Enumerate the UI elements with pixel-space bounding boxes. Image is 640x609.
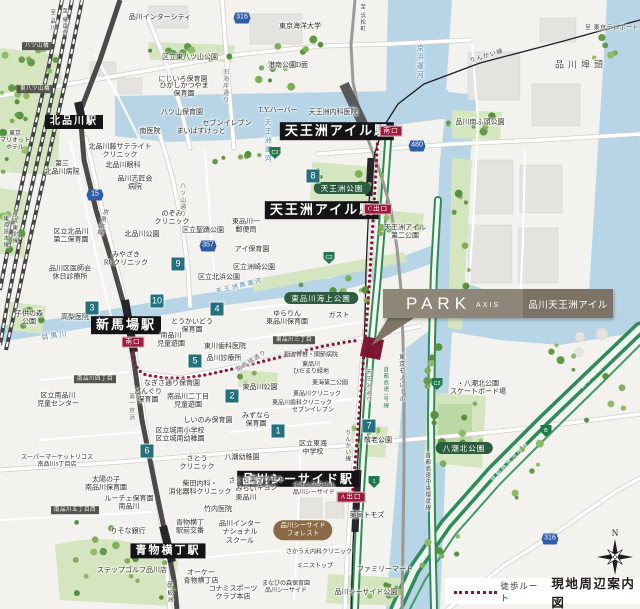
place-label: セブンイレブン (292, 407, 334, 414)
place-label: ミニストップ (297, 563, 333, 570)
numbered-badge: 9 (172, 258, 185, 271)
place-label: 子供の森 公園 (15, 310, 43, 327)
station-label: 天王洲アイル駅 (280, 122, 394, 140)
place-label: なぎさ通り保育園 (144, 379, 200, 387)
place-label: ルーチェ保育園 南品川 (105, 495, 154, 512)
place-label: さかうえ内科クリニック (286, 549, 352, 556)
water-label: 天王洲運河 (264, 119, 272, 164)
place-label: りそな銀行 (111, 527, 146, 535)
place-label: 区立東八ツ山公園 (162, 53, 218, 61)
place-label: みやざき RCクリニック (104, 251, 148, 268)
area-map: 北品川駅天王洲アイル駅天王洲アイル駅新馬場駅品川シーサイド駅青物横丁駅南口C出口… (0, 0, 640, 609)
place-label: みずなら 保育園 (242, 412, 270, 429)
park-label: 天王洲公園 (314, 182, 371, 194)
place-label: ステップゴルフ品川店 (97, 566, 167, 574)
brand-subname: AXIS (476, 302, 500, 309)
place-label: まいばすけっと (177, 127, 226, 135)
property-callout: PARK AXIS 品川天王洲アイル (383, 289, 613, 318)
expressway-shield: 1 (369, 476, 380, 488)
numbered-badge: 4 (211, 303, 224, 316)
place-label: スーパーマーケットリコス 南品川5丁目店 (21, 455, 93, 469)
place-label: 東品川公園 (243, 383, 278, 391)
place-label: 稲波脊椎・関節病院 (284, 352, 338, 359)
place-label: 南品川二丁目 児童遊園 (167, 393, 209, 410)
rail-label: りんかい線 (469, 48, 505, 65)
station-label: 天王洲アイル駅 (265, 201, 379, 219)
rail-label: 至 鮫洲 (166, 581, 173, 603)
street-sign: 南品川四丁目 (74, 375, 116, 383)
park-label: 八潮北公園 (436, 442, 493, 454)
destination-label: 至 東京テレポート (585, 25, 639, 32)
route-shield: 15 (87, 190, 104, 201)
place-label: ひがしかつやま 保育園 (160, 82, 209, 99)
expressway-shield: B (541, 425, 552, 437)
place-label: 品川インター ナショナル スクール (219, 519, 261, 544)
place-label: ガスト (329, 311, 350, 319)
street-sign: 東品川三丁目 (273, 336, 315, 344)
route-shield: 316 (542, 534, 559, 545)
place-label: 区立南品川 児童センター (37, 392, 79, 409)
water-label: 京浜運河 (416, 44, 424, 80)
property-name: 品川天王洲アイル (523, 289, 613, 318)
station-label: 青物横丁駅 (131, 543, 206, 558)
place-label: 青物横丁 駅前交番 (176, 519, 204, 536)
numbered-badge: 5 (189, 355, 202, 368)
expressway-label: 首都高速1号線 (382, 367, 389, 410)
place-label: まなびの森保育園 品川シーサイド (262, 581, 310, 595)
station-label: 北品川駅 (45, 115, 103, 129)
place-label: コナミスポーツ クラブ本店 (209, 585, 258, 602)
place-label: ・八潮北公園 スケートボード場 (450, 380, 506, 397)
place-label: 天王洲アイル 第二公園 (384, 224, 426, 241)
place-label: 東京海洋大学 (279, 22, 321, 30)
street-sign: 東八ツ山橋 (17, 85, 53, 93)
rail-label: 至 浜松町 (359, 4, 366, 32)
place-label: 区立北品川 第二保育園 (54, 228, 89, 245)
road-label: 八ツ山通り (177, 183, 184, 218)
rail-label: 東京モノレール (396, 354, 403, 403)
place-label: 八潮幼稚園 (225, 453, 260, 461)
place-label: さとう クリニック (180, 455, 215, 472)
numbered-badge: 10 (151, 295, 164, 308)
expressway-shield: C2 (432, 378, 443, 390)
place-label: アイ保育園 (235, 245, 270, 253)
compass-rose-icon (596, 538, 634, 576)
place-label: 北品川藤サテライト クリニック (89, 143, 152, 160)
place-label: イオンスタイル 品川シーサイド (293, 483, 335, 497)
numbered-badge: 1 (272, 425, 285, 438)
rail-label: 京急本線 (94, 208, 108, 237)
road-label: 旧海岸通り (220, 69, 227, 104)
place-label: 品川南ふ頭公園 (456, 118, 505, 126)
place-label: 第三 北品川病院 (45, 160, 80, 177)
route-shield: 480 (409, 141, 426, 152)
place-label: 区立北浜公園 (198, 273, 240, 281)
park-label: 東品川海上公園 (284, 292, 358, 304)
rail-label: 東海道本線 (2, 216, 9, 249)
brand-panel: PARK AXIS (383, 289, 523, 318)
exit-label: C出口 (364, 204, 392, 215)
place-label: 東品川一 郵便局 (232, 218, 260, 235)
walk-route-label: 徒歩ルート (500, 580, 543, 604)
place-label: 区立城南小学校 区立城南幼稚園 (156, 427, 205, 444)
rail-label: 京浜東北線 (11, 212, 18, 245)
map-legend: 徒歩ルート 現地周辺案内図 (448, 580, 640, 604)
numbered-badge: 6 (141, 445, 154, 458)
place-label: T.Y.ハーバー (258, 106, 297, 114)
place-label: 品川区医師会 休日診療所 (49, 265, 91, 282)
place-label: 港南公園D面 (268, 61, 308, 69)
expressway-label: 首都高速湾岸線 (489, 441, 531, 483)
numbered-badge: 2 (226, 390, 239, 403)
place-label: 薬局トモズ (350, 511, 385, 519)
place-label: 北品川眼科 (106, 161, 141, 169)
place-label: 東海第二公園 (312, 380, 348, 387)
water-label: 目黒川 (41, 330, 69, 342)
place-label: 柴田内科・ 消化器科クリニック (169, 480, 232, 497)
place-label: 品川シーサイド公園 (335, 588, 398, 596)
compass: N (596, 528, 634, 580)
road-label: 第一京浜 (126, 393, 133, 421)
place-label: どんぐり 保育園 (134, 388, 162, 405)
numbered-badge: 8 (307, 170, 320, 183)
place-label: 品川志匠会 病院 (118, 175, 153, 192)
place-label: 薬マツモト キヨシ (250, 476, 285, 493)
route-shield: 357 (200, 241, 217, 252)
place-label: 太陽の子 南品川保育園 (85, 476, 127, 493)
place-label: 東品川クリニック (293, 391, 341, 398)
rail-label: 首都高速中央環状線 (424, 453, 431, 512)
rail-label: りんかい線 (344, 430, 351, 463)
place-label: しいのみ保育園 (184, 416, 233, 424)
place-label: 東京 マリオット ホテル (0, 131, 30, 153)
place-label: オーケー 青物横丁店 (184, 569, 219, 586)
place-label: 北品川公園 (125, 230, 160, 238)
street-sign: 南品川五丁目西 (51, 506, 99, 514)
exit-label: 南口 (122, 337, 145, 348)
walk-route-line-sample (454, 591, 497, 594)
place-label: 品川診療所 (207, 354, 242, 362)
place-label: セブンイレブン (203, 119, 252, 127)
compass-north-label: N (596, 528, 634, 538)
place-label: 品川インターシティ (129, 13, 191, 21)
place-label: 南品川 児童遊園 (157, 332, 185, 349)
route-shield: 316 (234, 13, 251, 24)
place-label: 区立聖蹟公園 (182, 226, 224, 234)
numbered-badge: 3 (86, 302, 99, 315)
place-label: 敬老公園 (364, 436, 392, 444)
brand-name: PARK (406, 294, 471, 314)
road-label: 天王洲通り (363, 369, 370, 404)
numbered-badge: 7 (363, 420, 376, 433)
expressway-shield: C2 (324, 252, 335, 264)
place-label: 区立東海 中学校 (299, 440, 327, 457)
place-label: 東川歯科医院 (204, 342, 246, 350)
place-label: ファミリーマート (357, 565, 413, 573)
expressway-label: 首都高速湾岸線 (579, 349, 621, 391)
landmark-oval-label: 品川シーサイド フォレスト (273, 520, 332, 540)
street-sign: 八ツ山橋 (22, 42, 52, 50)
place-label: ゆらりん 東品川保育園 (266, 310, 308, 327)
place-label: 区立洲崎公園 (233, 263, 275, 271)
place-label: 竹内医院 (204, 505, 232, 513)
exit-label: A出口 (337, 492, 366, 503)
rail-label: 至 泉岳寺 (61, 8, 68, 36)
place-label: 東品川 ひだまり緑地 (293, 362, 329, 376)
rail-label: 至 品川 (49, 9, 56, 31)
station-label: 新馬場駅 (91, 316, 161, 334)
area-label: 品川埠頭 (555, 60, 607, 71)
place-label: 南医院 (140, 127, 161, 135)
place-label: 八ツ山保育園 (161, 108, 203, 116)
place-label: 天王洲内科医院 (309, 108, 358, 116)
exit-label: 南口 (380, 126, 403, 137)
